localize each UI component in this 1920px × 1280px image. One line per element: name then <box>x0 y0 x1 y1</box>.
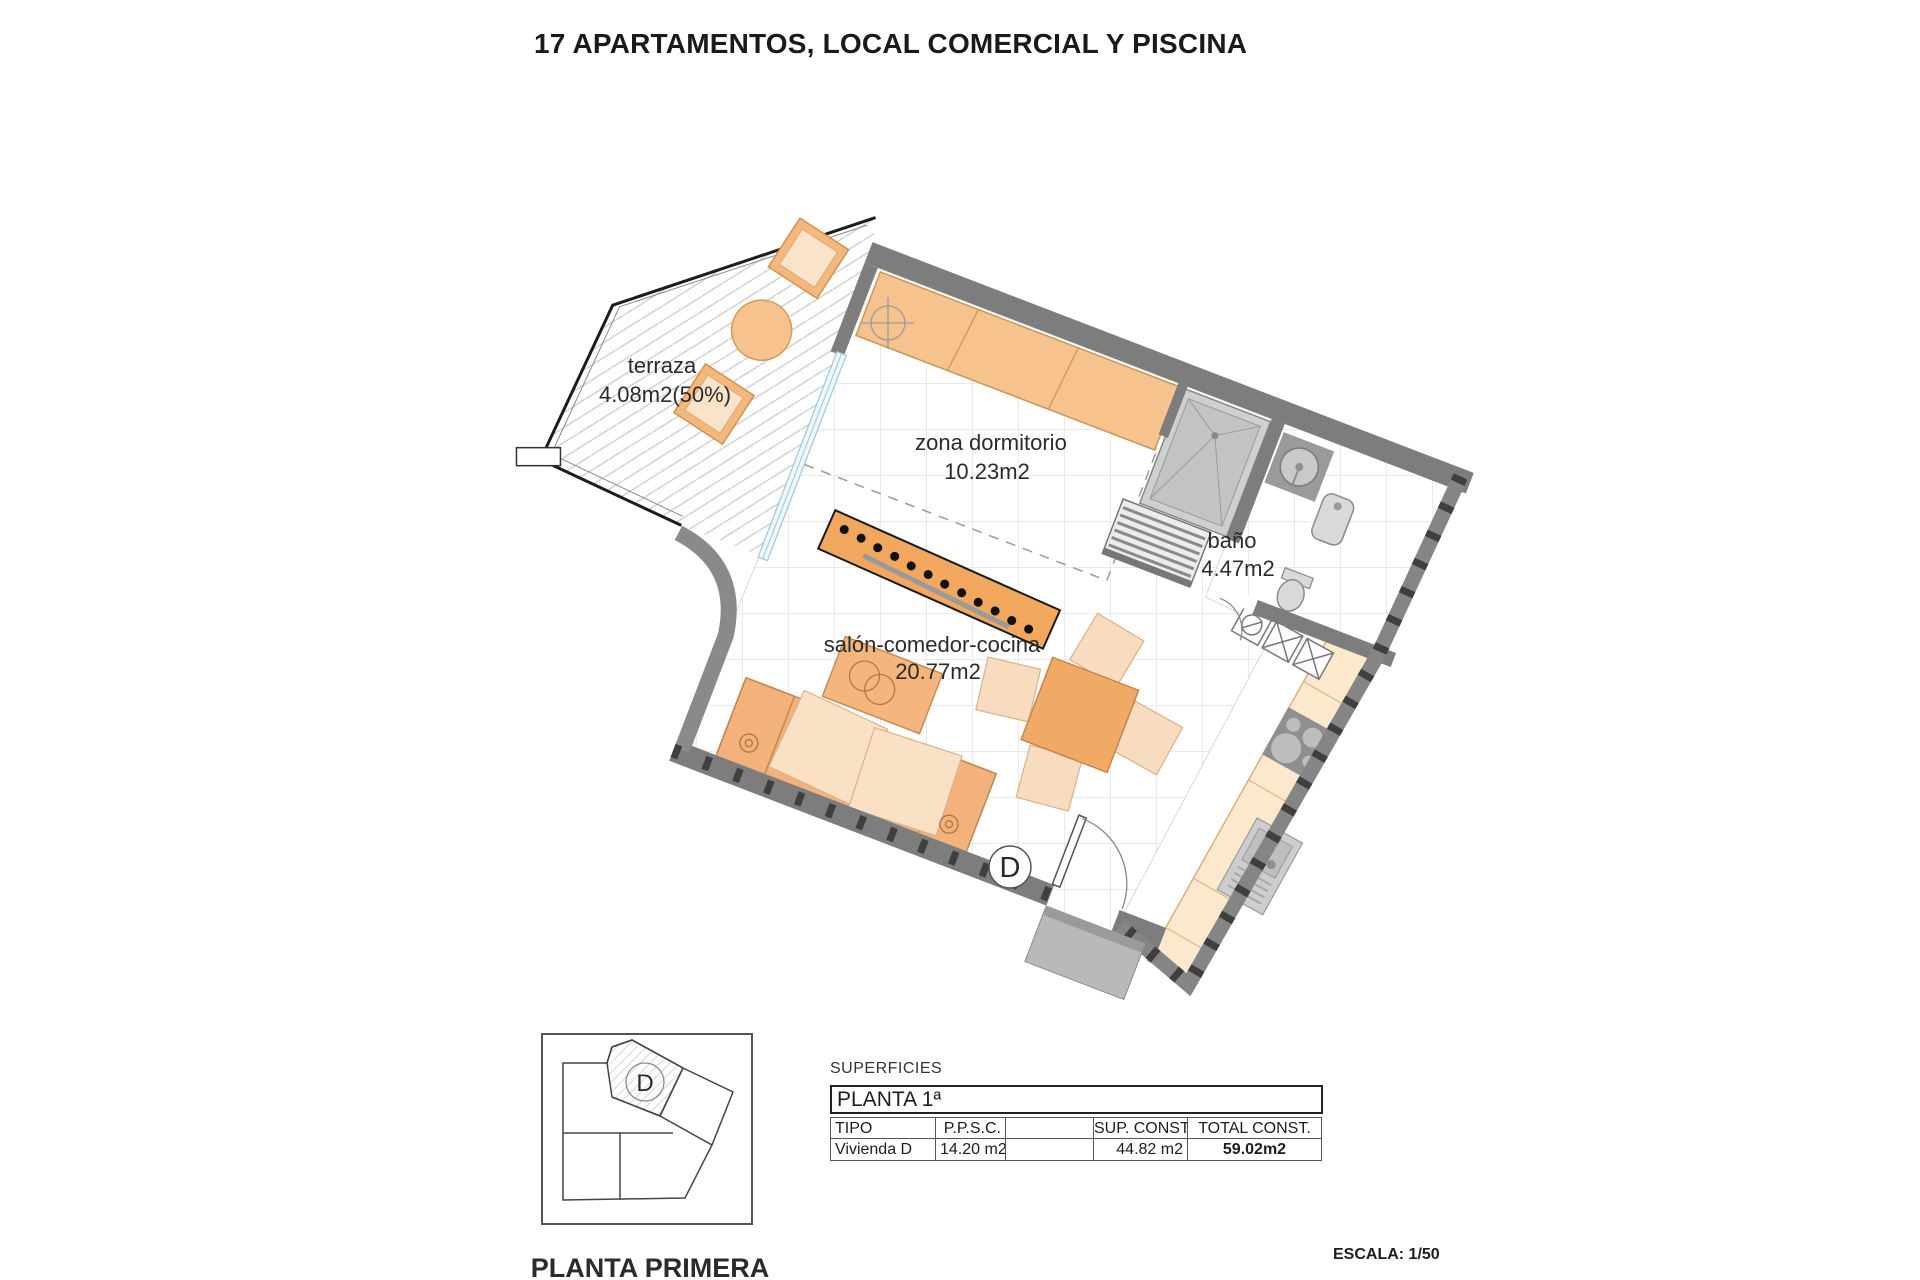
floor-title-box: PLANTA 1ª <box>830 1085 1323 1114</box>
keyplan-unit-letter: D <box>636 1070 653 1097</box>
value-gap <box>1005 1139 1093 1161</box>
surfaces-header-row: TIPO P.P.S.C. SUP. CONST. TOTAL CONST. <box>830 1117 1322 1139</box>
terrace-planter <box>516 448 560 466</box>
col-gap <box>1005 1117 1093 1139</box>
floor-plan-sheet: 17 APARTAMENTOS, LOCAL COMERCIAL Y PISCI… <box>0 0 1920 1280</box>
keyplan-caption: PLANTA PRIMERA <box>531 1253 770 1280</box>
bano-area: 4.47m2 <box>1201 556 1274 581</box>
col-sup: SUP. CONST. <box>1093 1117 1187 1139</box>
dormitorio-label: zona dormitorio <box>915 430 1067 455</box>
surfaces-data-row: Vivienda D 14.20 m2 44.82 m2 59.02m2 <box>830 1139 1322 1161</box>
col-total: TOTAL CONST. <box>1187 1117 1322 1139</box>
salon-label: salón-comedor-cocina <box>824 632 1041 657</box>
floor-title: PLANTA 1ª <box>837 1088 941 1112</box>
value-total: 59.02m2 <box>1187 1139 1322 1161</box>
terraza-label: terraza <box>628 353 697 378</box>
salon-area: 20.77m2 <box>895 659 981 684</box>
terraza-area: 4.08m2(50%) <box>599 382 731 407</box>
col-ppsc: P.P.S.C. <box>935 1117 1005 1139</box>
keyplan: D PLANTA PRIMERA <box>531 1034 770 1280</box>
value-sup: 44.82 m2 <box>1093 1139 1187 1161</box>
unit-letter: D <box>1000 852 1021 884</box>
value-ppsc: 14.20 m2 <box>935 1139 1005 1161</box>
unit-marker: D <box>989 846 1031 888</box>
value-tipo: Vivienda D <box>830 1139 935 1161</box>
scale-note: ESCALA: 1/50 <box>1333 1246 1440 1264</box>
surfaces-heading: SUPERFICIES <box>830 1060 942 1078</box>
bano-label: baño <box>1208 528 1257 553</box>
apartment-plan <box>410 127 1483 1049</box>
dormitorio-area: 10.23m2 <box>944 459 1030 484</box>
col-tipo: TIPO <box>830 1117 935 1139</box>
